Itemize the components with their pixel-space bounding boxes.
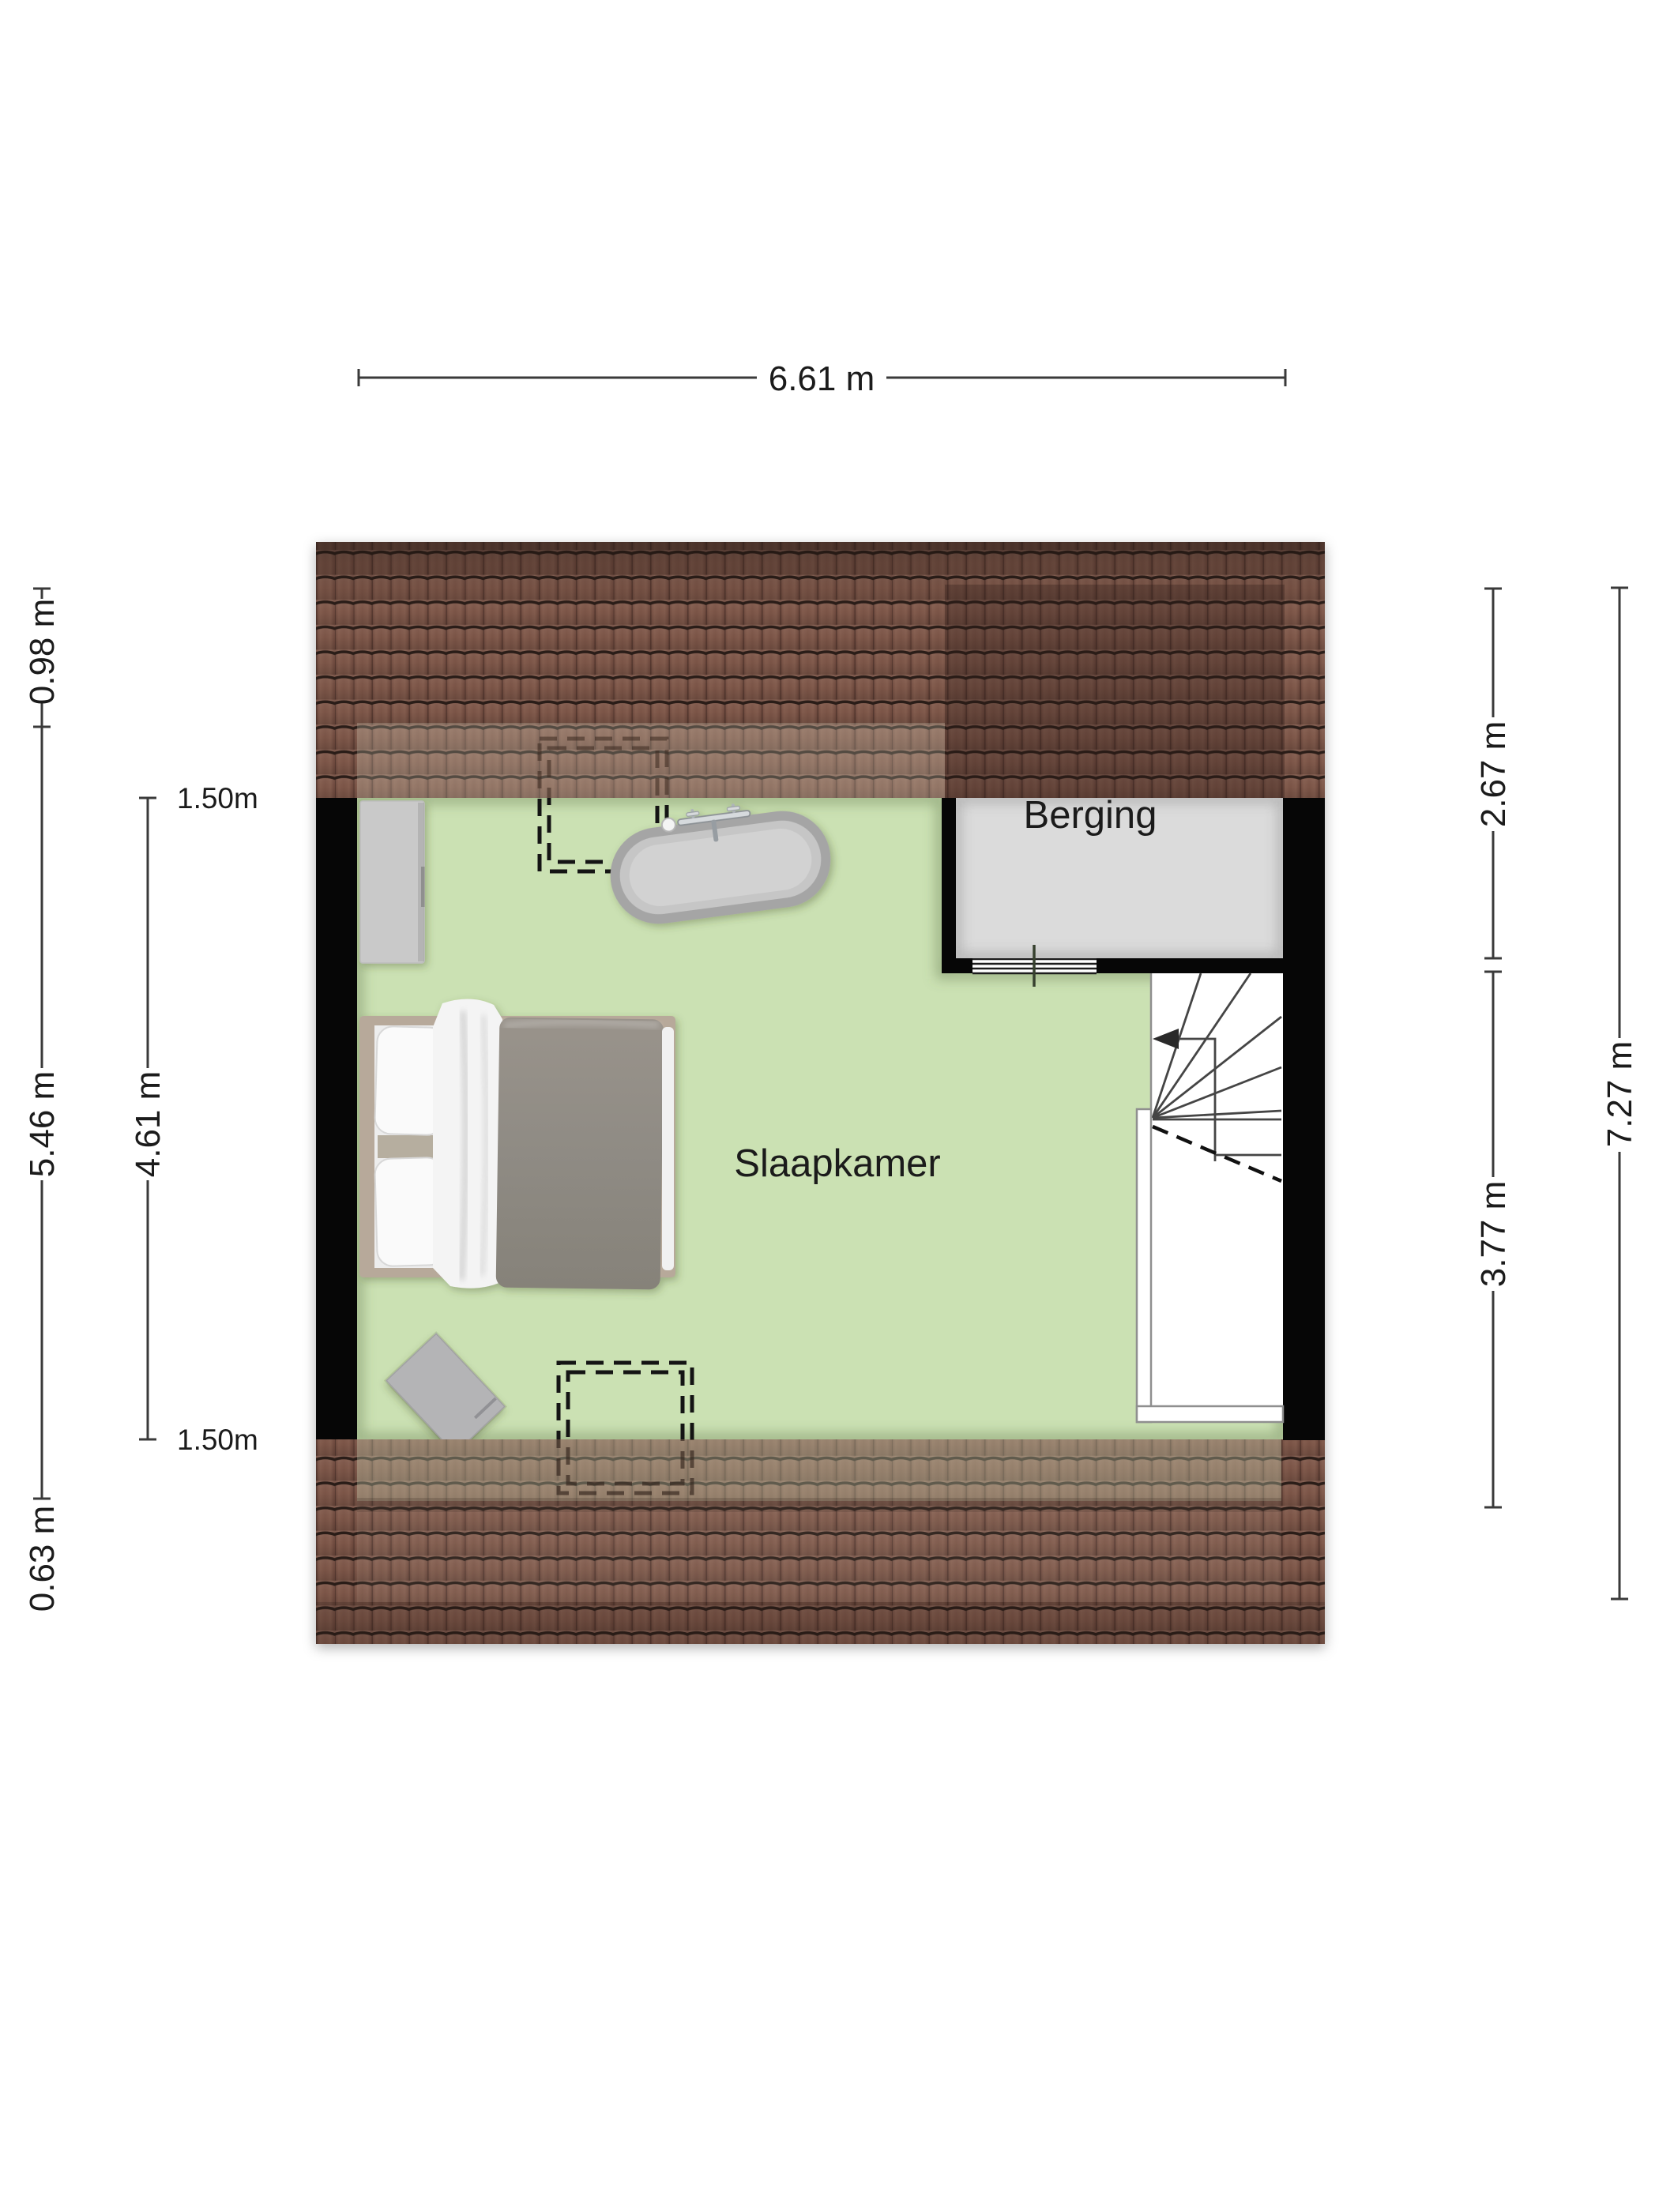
svg-text:3.77 m: 3.77 m <box>1474 1181 1513 1288</box>
svg-text:6.61 m: 6.61 m <box>769 359 875 398</box>
svg-text:0.63 m: 0.63 m <box>23 1506 62 1612</box>
svg-text:1.50m: 1.50m <box>177 782 258 814</box>
svg-text:5.46 m: 5.46 m <box>23 1071 62 1178</box>
svg-text:Slaapkamer: Slaapkamer <box>734 1142 940 1185</box>
svg-text:Berging: Berging <box>1024 794 1157 837</box>
svg-text:2.67 m: 2.67 m <box>1474 721 1513 828</box>
svg-text:4.61 m: 4.61 m <box>129 1071 167 1178</box>
svg-text:7.27 m: 7.27 m <box>1601 1041 1639 1148</box>
svg-text:0.98 m: 0.98 m <box>23 599 62 705</box>
svg-text:1.50m: 1.50m <box>177 1424 258 1456</box>
